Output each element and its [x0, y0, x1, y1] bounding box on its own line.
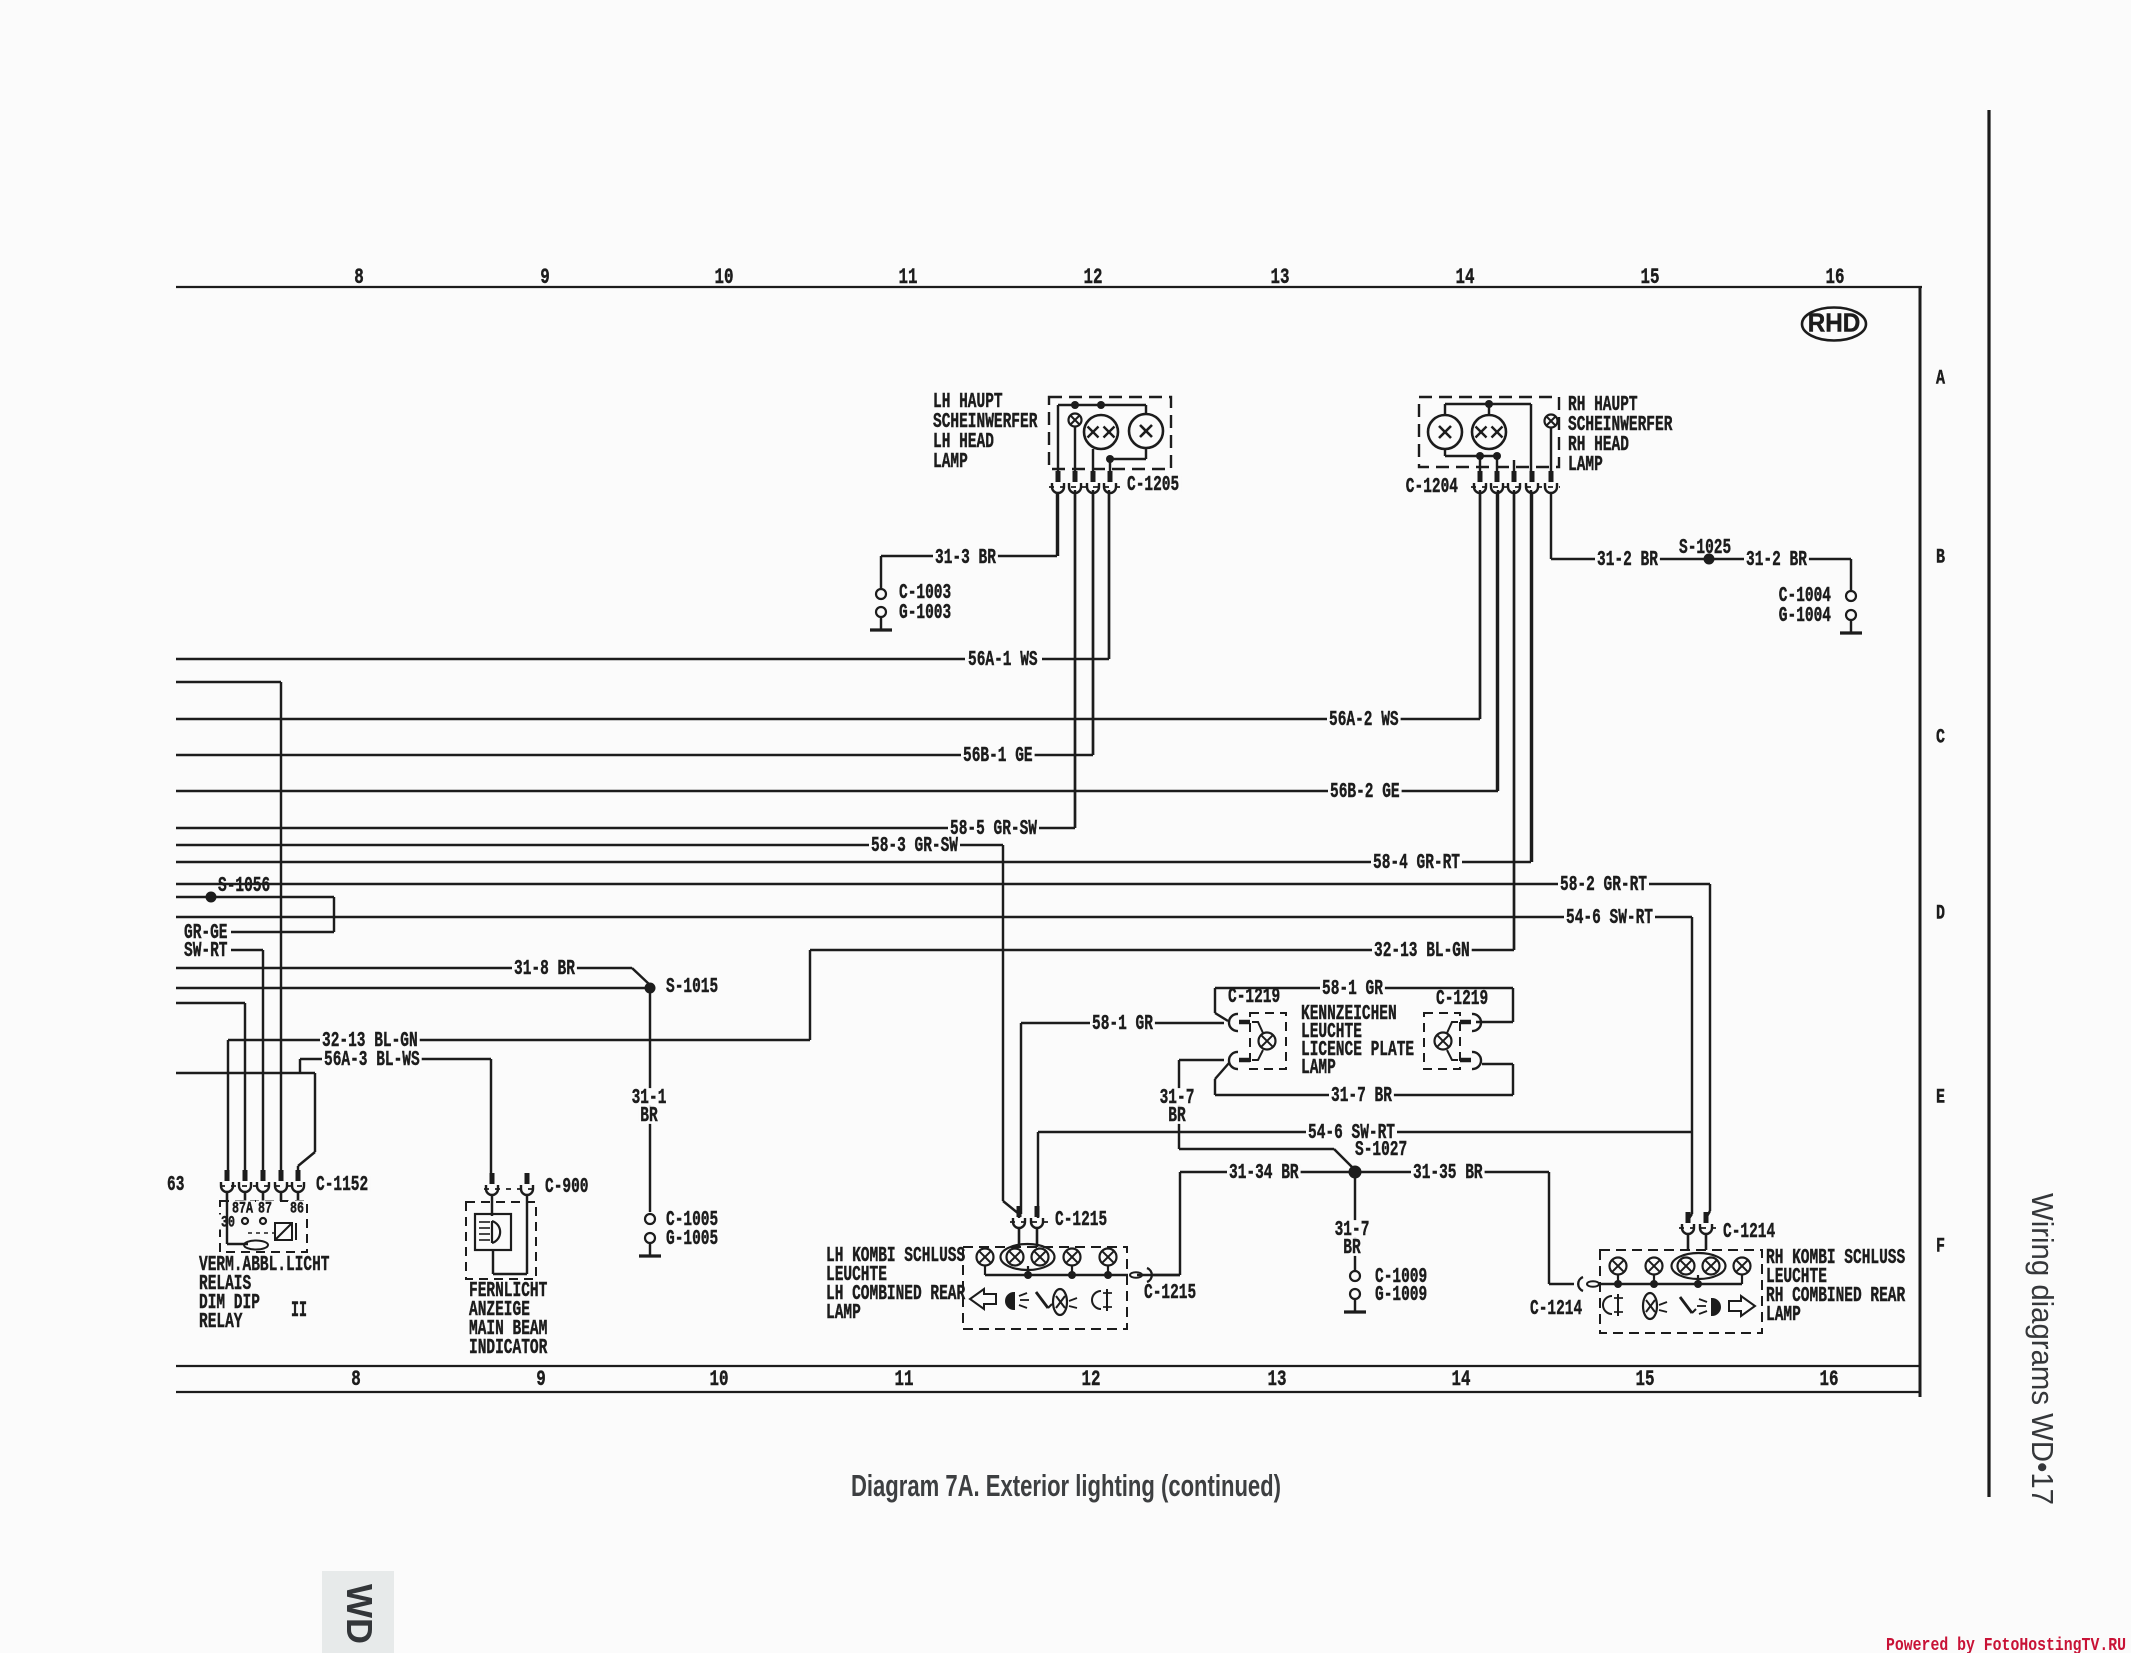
- svg-text:II: II: [291, 1298, 307, 1323]
- svg-text:14: 14: [1456, 265, 1475, 290]
- svg-text:S-1025: S-1025: [1679, 537, 1731, 560]
- svg-text:8: 8: [354, 265, 364, 290]
- svg-text:10: 10: [710, 1367, 729, 1392]
- svg-text:56A-2 WS: 56A-2 WS: [1329, 709, 1399, 732]
- svg-text:C-900: C-900: [545, 1176, 589, 1199]
- svg-text:9: 9: [536, 1367, 546, 1392]
- svg-text:C-1214: C-1214: [1723, 1221, 1775, 1244]
- svg-text:C-1152: C-1152: [316, 1174, 368, 1197]
- svg-text:C-1205: C-1205: [1127, 474, 1179, 497]
- svg-text:54-6 SW-RT: 54-6 SW-RT: [1566, 907, 1653, 930]
- svg-text:56A-1 WS: 56A-1 WS: [968, 649, 1038, 672]
- svg-text:C-1214: C-1214: [1530, 1298, 1582, 1321]
- svg-text:11: 11: [895, 1367, 914, 1392]
- svg-text:LAMP: LAMP: [933, 451, 968, 474]
- svg-text:10: 10: [715, 265, 734, 290]
- svg-text:31-3 BR: 31-3 BR: [935, 547, 996, 570]
- svg-text:15: 15: [1636, 1367, 1655, 1392]
- svg-text:16: 16: [1826, 265, 1845, 290]
- svg-text:WD: WD: [339, 1584, 380, 1644]
- svg-text:SW-RT: SW-RT: [184, 940, 228, 963]
- svg-text:C: C: [1936, 727, 1945, 750]
- svg-text:C-1219: C-1219: [1228, 986, 1280, 1009]
- svg-text:31-34 BR: 31-34 BR: [1229, 1162, 1299, 1185]
- svg-text:C-1219: C-1219: [1436, 988, 1488, 1011]
- svg-text:Wiring diagrams WD•17: Wiring diagrams WD•17: [2025, 1193, 2060, 1505]
- svg-text:RHD: RHD: [1808, 307, 1861, 337]
- svg-text:11: 11: [899, 265, 918, 290]
- svg-text:31-35 BR: 31-35 BR: [1413, 1162, 1483, 1185]
- svg-text:13: 13: [1271, 265, 1290, 290]
- svg-text:RELAY: RELAY: [199, 1311, 243, 1334]
- svg-text:E: E: [1936, 1087, 1945, 1110]
- svg-text:BR: BR: [1343, 1237, 1361, 1260]
- svg-text:58-2 GR-RT: 58-2 GR-RT: [1560, 874, 1647, 897]
- svg-text:12: 12: [1084, 265, 1103, 290]
- svg-text:LAMP: LAMP: [826, 1302, 861, 1325]
- svg-text:58-3 GR-SW: 58-3 GR-SW: [871, 835, 958, 858]
- svg-text:58-4 GR-RT: 58-4 GR-RT: [1373, 852, 1460, 875]
- svg-text:86: 86: [290, 1200, 304, 1218]
- svg-text:LAMP: LAMP: [1766, 1304, 1801, 1327]
- svg-text:31-2 BR: 31-2 BR: [1597, 549, 1658, 572]
- svg-text:LAMP: LAMP: [1301, 1057, 1336, 1080]
- svg-text:31-2 BR: 31-2 BR: [1746, 549, 1807, 572]
- svg-text:G-1004: G-1004: [1779, 605, 1831, 628]
- svg-text:56B-2 GE: 56B-2 GE: [1330, 781, 1400, 804]
- svg-text:S-1056: S-1056: [218, 875, 270, 898]
- svg-text:D: D: [1936, 903, 1945, 926]
- svg-text:58-1 GR: 58-1 GR: [1092, 1013, 1153, 1036]
- svg-text:8: 8: [351, 1367, 361, 1392]
- svg-text:58-1 GR: 58-1 GR: [1322, 978, 1383, 1001]
- svg-text:54-6 SW-RT: 54-6 SW-RT: [1308, 1122, 1395, 1145]
- svg-text:G-1005: G-1005: [666, 1228, 718, 1251]
- svg-text:C-1215: C-1215: [1055, 1209, 1107, 1232]
- svg-text:C-1215: C-1215: [1144, 1282, 1196, 1305]
- svg-text:31-8 BR: 31-8 BR: [514, 958, 575, 981]
- svg-text:63: 63: [167, 1174, 184, 1197]
- svg-text:32-13 BL-GN: 32-13 BL-GN: [1374, 940, 1470, 963]
- svg-text:14: 14: [1452, 1367, 1471, 1392]
- svg-text:Diagram 7A. Exterior lighting: Diagram 7A. Exterior lighting (continued…: [851, 1468, 1281, 1503]
- svg-text:INDICATOR: INDICATOR: [469, 1337, 548, 1360]
- svg-text:12: 12: [1082, 1367, 1101, 1392]
- svg-text:BR: BR: [640, 1105, 658, 1128]
- svg-text:LAMP: LAMP: [1568, 454, 1603, 477]
- svg-text:56B-1 GE: 56B-1 GE: [963, 745, 1033, 768]
- svg-text:56A-3 BL-WS: 56A-3 BL-WS: [324, 1049, 420, 1072]
- svg-text:Powered by FotoHostingTV.RU: Powered by FotoHostingTV.RU: [1886, 1636, 2126, 1653]
- svg-text:9: 9: [540, 265, 550, 290]
- svg-text:58-5 GR-SW: 58-5 GR-SW: [950, 818, 1037, 841]
- svg-text:G-1003: G-1003: [899, 602, 951, 625]
- svg-text:F: F: [1936, 1236, 1945, 1259]
- svg-text:A: A: [1936, 368, 1945, 391]
- svg-text:87: 87: [258, 1200, 272, 1218]
- svg-text:B: B: [1936, 547, 1945, 570]
- svg-text:13: 13: [1268, 1367, 1287, 1392]
- svg-text:G-1009: G-1009: [1375, 1284, 1427, 1307]
- svg-text:16: 16: [1820, 1367, 1839, 1392]
- svg-text:31-7 BR: 31-7 BR: [1331, 1085, 1392, 1108]
- svg-text:15: 15: [1641, 265, 1660, 290]
- svg-text:S-1015: S-1015: [666, 976, 718, 999]
- svg-text:BR: BR: [1168, 1105, 1186, 1128]
- svg-text:C-1204: C-1204: [1406, 476, 1458, 499]
